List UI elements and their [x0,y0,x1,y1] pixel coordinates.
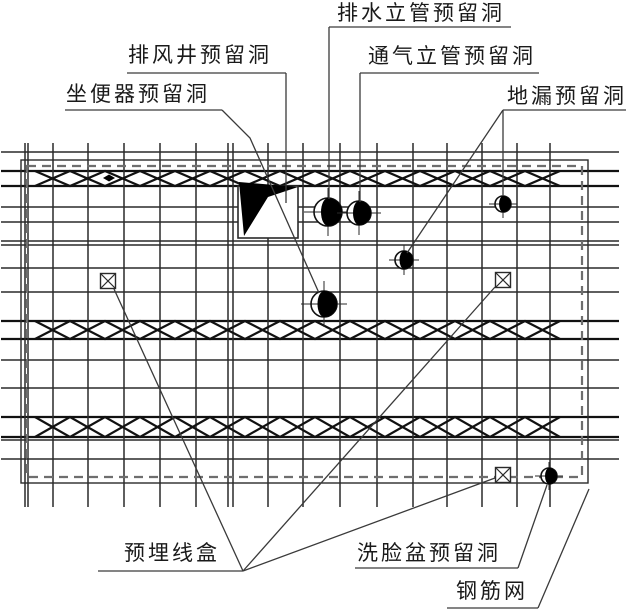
junction-box-left [101,274,116,289]
toilet-hole-label: 坐便器预留洞 [66,83,210,106]
exhaust-shaft-opening [238,182,298,238]
exhaust-shaft-hole-label: 排风井预留洞 [128,44,272,67]
floor-drain-hole-label-leader [407,110,503,253]
washbasin-hole [535,462,563,490]
vent-riser-hole [337,191,381,235]
floor-drain-hole-2 [389,245,419,275]
rebar-mesh-label: 钢筋网 [456,580,528,603]
rebar-mesh-label-leader [538,489,589,608]
embedded-junction-box-label: 预埋线盒 [124,542,220,565]
floor-drain-hole-label: 地漏预留洞 [507,85,627,108]
floor-slab-reserved-holes-plan: 排水立管预留洞排风井预留洞通气立管预留洞坐便器预留洞地漏预留洞预埋线盒洗脸盆预留… [0,0,627,613]
vent-riser-hole-label: 通气立管预留洞 [368,45,536,68]
rebar-grid [1,143,619,507]
junction-box-right [496,273,511,288]
washbasin-hole-label-leader [518,485,547,568]
washbasin-hole-label: 洗脸盆预留洞 [357,542,501,565]
drain-riser-hole-label: 排水立管预留洞 [337,2,505,25]
drain-riser-hole [304,188,352,236]
leader-lines [65,27,626,608]
junction-box-bottom [496,468,511,483]
